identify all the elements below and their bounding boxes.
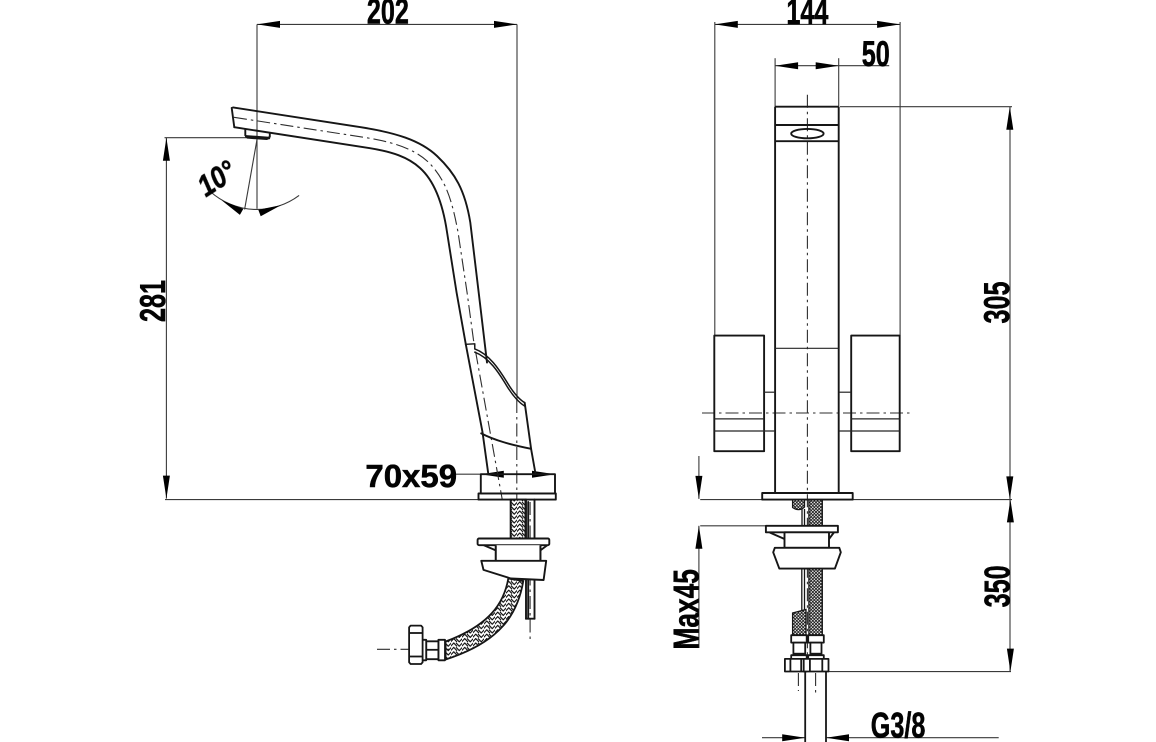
svg-text:144: 144	[786, 0, 828, 32]
svg-text:50: 50	[862, 33, 890, 74]
svg-text:G3/8: G3/8	[871, 705, 926, 742]
svg-text:281: 281	[132, 280, 173, 322]
svg-text:202: 202	[367, 0, 409, 32]
svg-text:350: 350	[977, 565, 1018, 607]
svg-text:305: 305	[976, 281, 1017, 323]
svg-text:Max45: Max45	[665, 569, 706, 649]
svg-text:70x59: 70x59	[365, 458, 457, 494]
